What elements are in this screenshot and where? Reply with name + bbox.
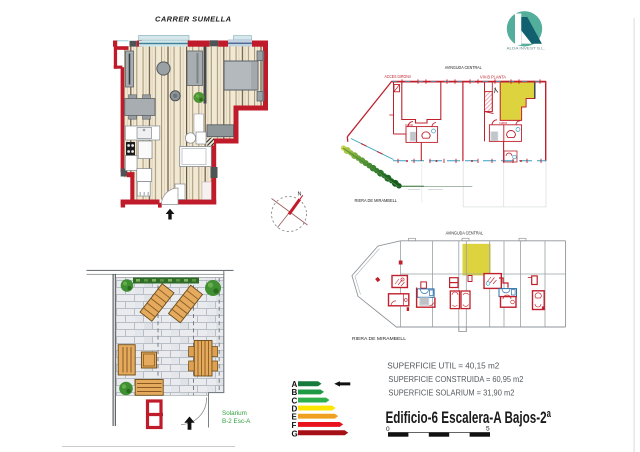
svg-text:RIERA DE MIRAMBELL: RIERA DE MIRAMBELL [352, 336, 406, 342]
svg-text:5: 5 [486, 426, 490, 433]
svg-text:ALDA INVEST S.L.: ALDA INVEST S.L. [507, 46, 546, 51]
svg-text:SUPERFICIE UTIL = 40,15 m2: SUPERFICIE UTIL = 40,15 m2 [387, 362, 500, 371]
svg-text:VIV-B PLANTA: VIV-B PLANTA [480, 75, 506, 80]
svg-text:ACCES GIRONA: ACCES GIRONA [385, 74, 412, 79]
svg-text:cuina: cuina [499, 121, 507, 125]
svg-text:AVINGUDA CENTRAL: AVINGUDA CENTRAL [445, 65, 482, 70]
svg-text:SUPERFICIE CONSTRUIDA = 60,9: SUPERFICIE CONSTRUIDA = 60,95 m2 [388, 375, 524, 384]
svg-text:SUPERFICIE SOLARIUM = 31,90: SUPERFICIE SOLARIUM = 31,90 m2 [388, 389, 515, 398]
svg-text:G: G [292, 429, 298, 438]
svg-text:cuina: cuina [405, 123, 413, 127]
svg-text:Solarium: Solarium [222, 410, 247, 417]
svg-text:N: N [298, 192, 302, 198]
svg-text:AVINGUDA CENTRAL: AVINGUDA CENTRAL [446, 231, 484, 236]
svg-text:B-2 Esc-A: B-2 Esc-A [222, 418, 251, 425]
svg-text:RIERA DE MIRAMBELL: RIERA DE MIRAMBELL [355, 198, 398, 203]
svg-text:Edificio-6 Escalera-A Bajos-2ª: Edificio-6 Escalera-A Bajos-2ª [386, 408, 552, 427]
svg-text:0: 0 [386, 426, 390, 433]
svg-text:CARRER SUMELLA: CARRER SUMELLA [155, 15, 231, 24]
